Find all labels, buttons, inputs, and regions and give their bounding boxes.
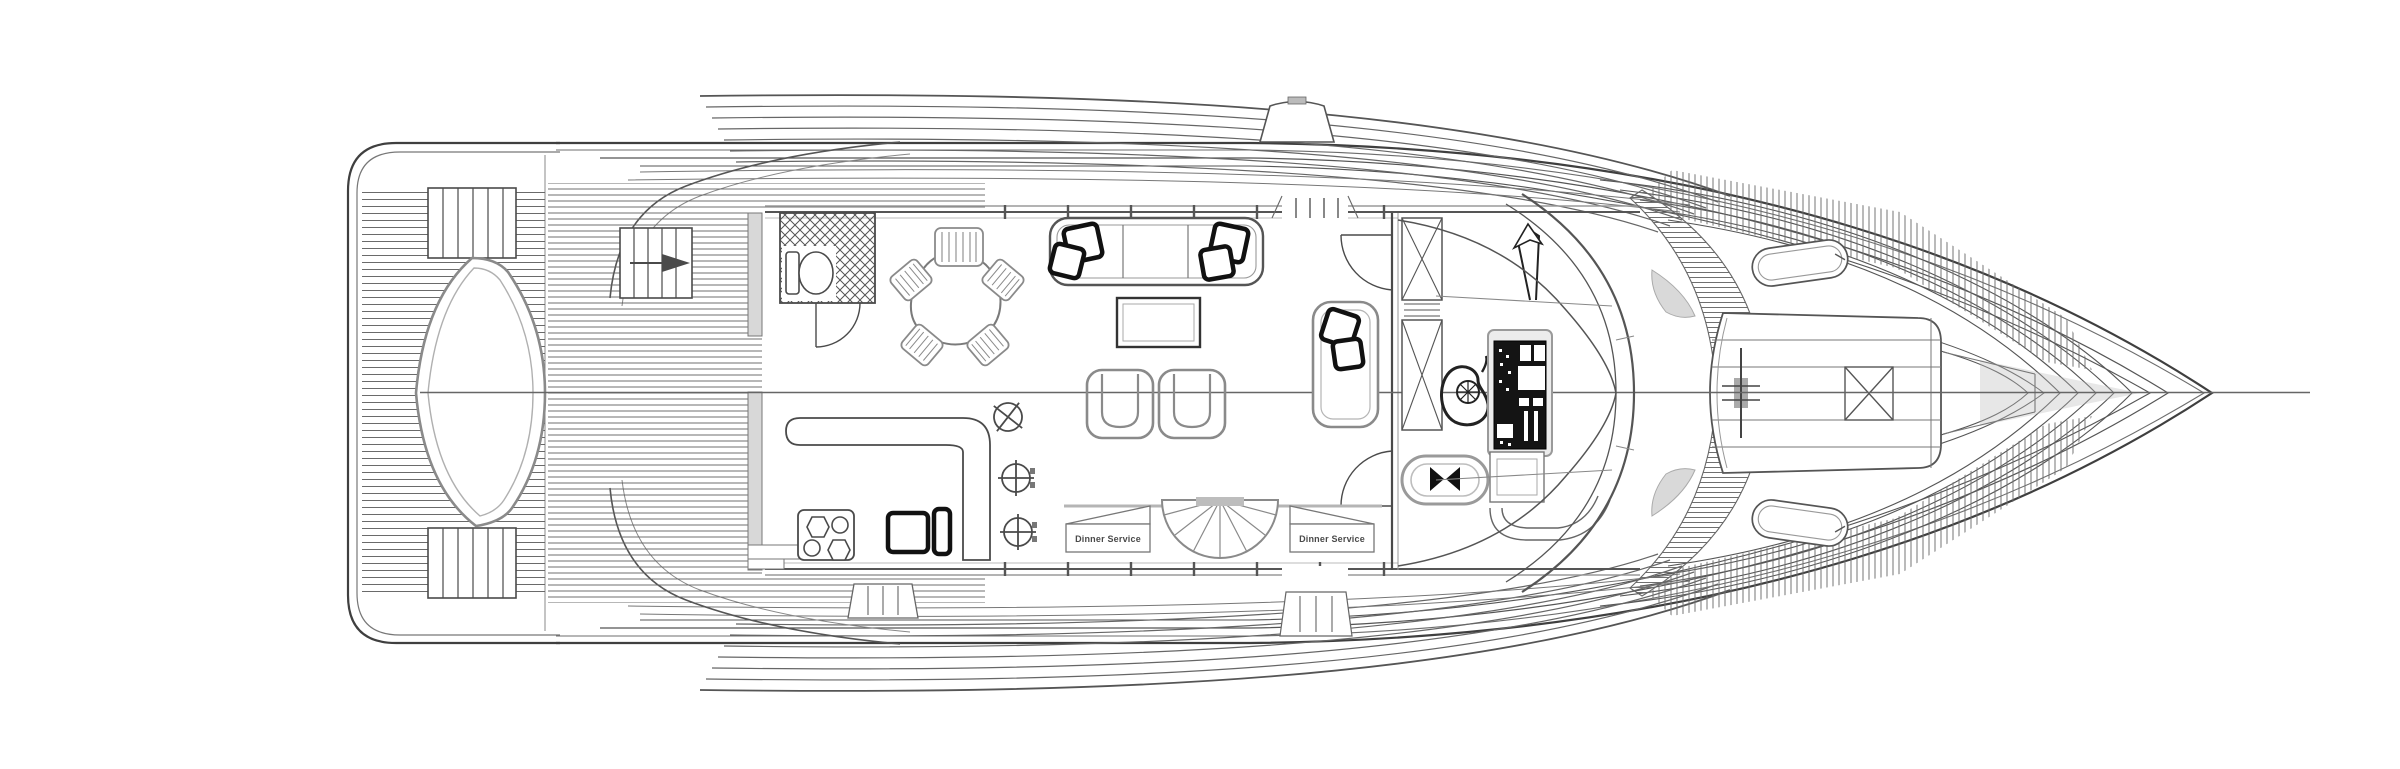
deck-hatch-top <box>1750 238 1850 289</box>
boarding-gate-bottom <box>1280 566 1352 636</box>
helm-cabinet <box>1402 218 1442 430</box>
boarding-gate-top <box>1272 196 1358 220</box>
armchair-icon <box>1313 302 1378 427</box>
stern-steps-bottom <box>428 528 516 598</box>
pillow-icon <box>1332 338 1364 370</box>
yacht-deck-plan-canvas: Dinner Service Dinner Service <box>0 0 2400 769</box>
radar-arch <box>1260 97 1334 142</box>
pillow-icon <box>1049 243 1085 279</box>
pillow-icon <box>1200 246 1235 281</box>
deck-hatch-bottom <box>1750 498 1850 549</box>
cockpit-steps <box>620 228 692 298</box>
stair-label-left: Dinner Service <box>1075 534 1141 544</box>
stair-label-right: Dinner Service <box>1299 534 1365 544</box>
yacht-deck-plan: Dinner Service Dinner Service <box>0 0 2400 769</box>
spiral-stair-icon: Dinner Service Dinner Service <box>1064 497 1382 558</box>
stern-steps-top <box>428 188 516 258</box>
dining-chair-icon <box>935 228 983 266</box>
stove-icon <box>798 510 854 560</box>
companionway-door <box>1514 224 1542 300</box>
deck-hatch-crossed <box>1845 367 1893 420</box>
toilet-icon <box>786 252 833 294</box>
cockpit-gate-bottom <box>848 584 918 618</box>
fridge-icon <box>888 509 950 554</box>
coffee-table-icon <box>1117 298 1200 347</box>
sofa-icon <box>1049 218 1263 285</box>
steering-wheel-icon <box>1441 356 1488 425</box>
